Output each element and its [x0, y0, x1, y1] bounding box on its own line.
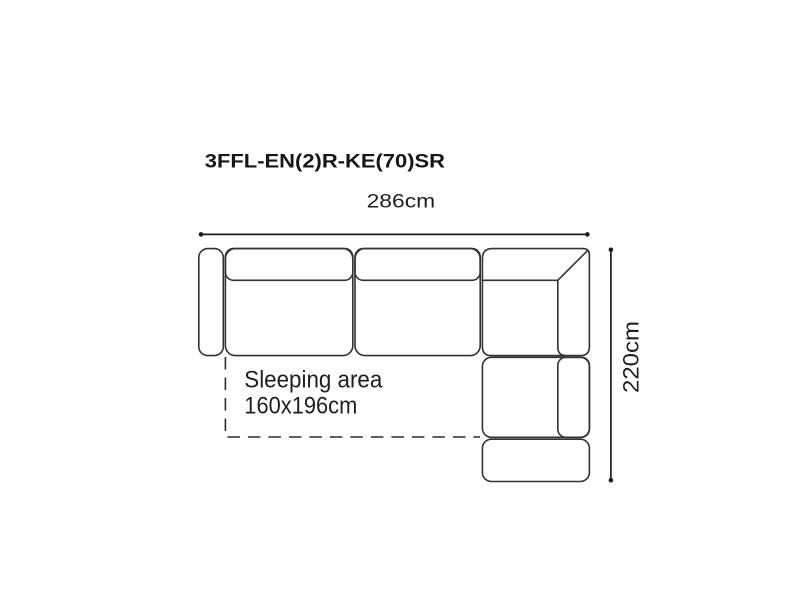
svg-text:286cm: 286cm [367, 191, 436, 213]
svg-text:220cm: 220cm [619, 321, 644, 393]
svg-text:160x196cm: 160x196cm [244, 394, 357, 420]
svg-text:Sleeping area: Sleeping area [244, 368, 383, 394]
svg-text:3FFL-EN(2)R-KE(70)SR: 3FFL-EN(2)R-KE(70)SR [205, 150, 445, 172]
